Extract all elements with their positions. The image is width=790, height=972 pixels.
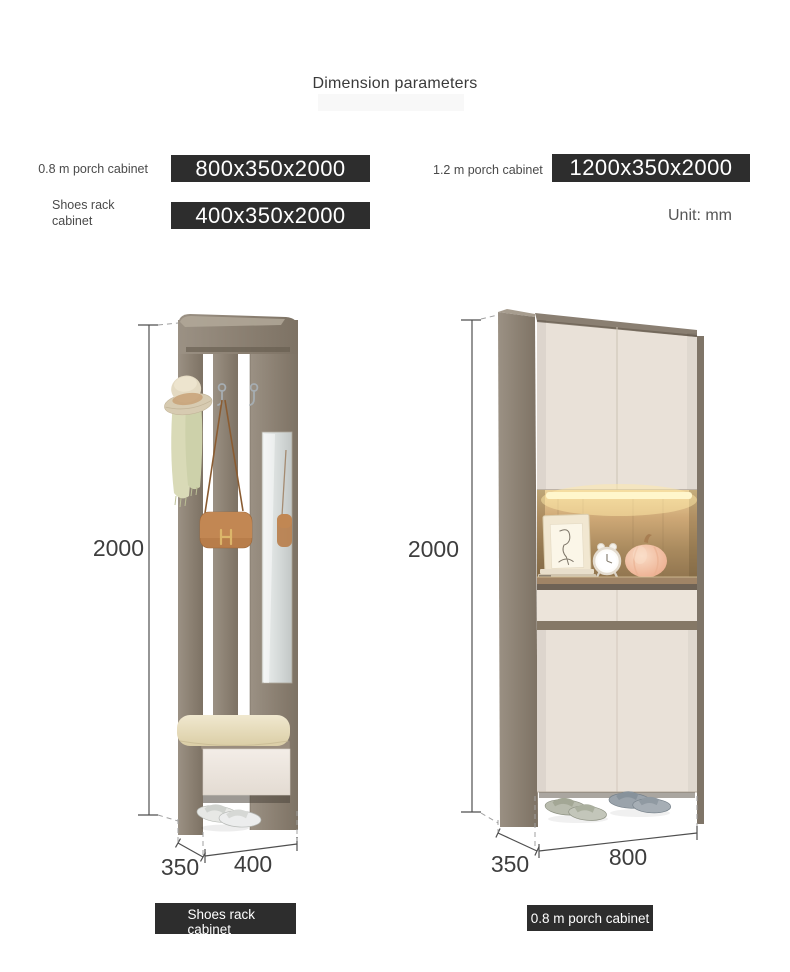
base-slippers [539,790,695,823]
led-strip [546,492,692,499]
dimension-parameters-page: Dimension parameters 0.8 m porch cabinet… [0,0,790,972]
watermark-ghost [318,94,464,111]
picture-frame [543,514,591,578]
bench-cushion [177,715,290,746]
led-glow [541,484,697,516]
drawers [537,584,697,630]
spec-label-1-2m: 1.2 m porch cabinet [433,162,551,178]
porch-caption-box: 0.8 m porch cabinet [527,905,653,931]
porch-cabinet-illustration [408,300,708,880]
shoes-rack-cabinet-illustration [88,300,320,880]
bench-drawer [203,749,290,795]
right-trim [697,336,704,824]
shoes-rack-width-label: 400 [223,851,283,877]
shoes-rack-caption-box: Shoes rack cabinet [155,903,296,934]
shoes-rack-depth-label: 350 [150,854,210,880]
hat [161,372,214,417]
spec-label-shoes-rack: Shoes rack cabinet [52,197,132,229]
mirror [262,432,292,683]
unit-label: Unit: mm [630,207,732,225]
shoes-rack-height-label: 2000 [86,535,144,561]
page-title: Dimension parameters [0,75,790,93]
spec-label-0-8m: 0.8 m porch cabinet [28,161,148,177]
spec-value-shoes-rack: 400x350x2000 [171,202,370,229]
canopy [178,314,298,354]
porch-depth-label: 350 [480,851,540,877]
lower-doors [537,630,697,792]
spec-value-1-2m: 1200x350x2000 [552,154,750,182]
porch-width-label: 800 [598,844,658,870]
porch-height-label: 2000 [401,536,459,562]
porch-caption: 0.8 m porch cabinet [531,911,650,926]
shoes-rack-caption: Shoes rack cabinet [188,907,264,934]
spec-value-0-8m: 800x350x2000 [171,155,370,182]
side-panel [498,312,538,827]
display-shelf [537,484,697,586]
